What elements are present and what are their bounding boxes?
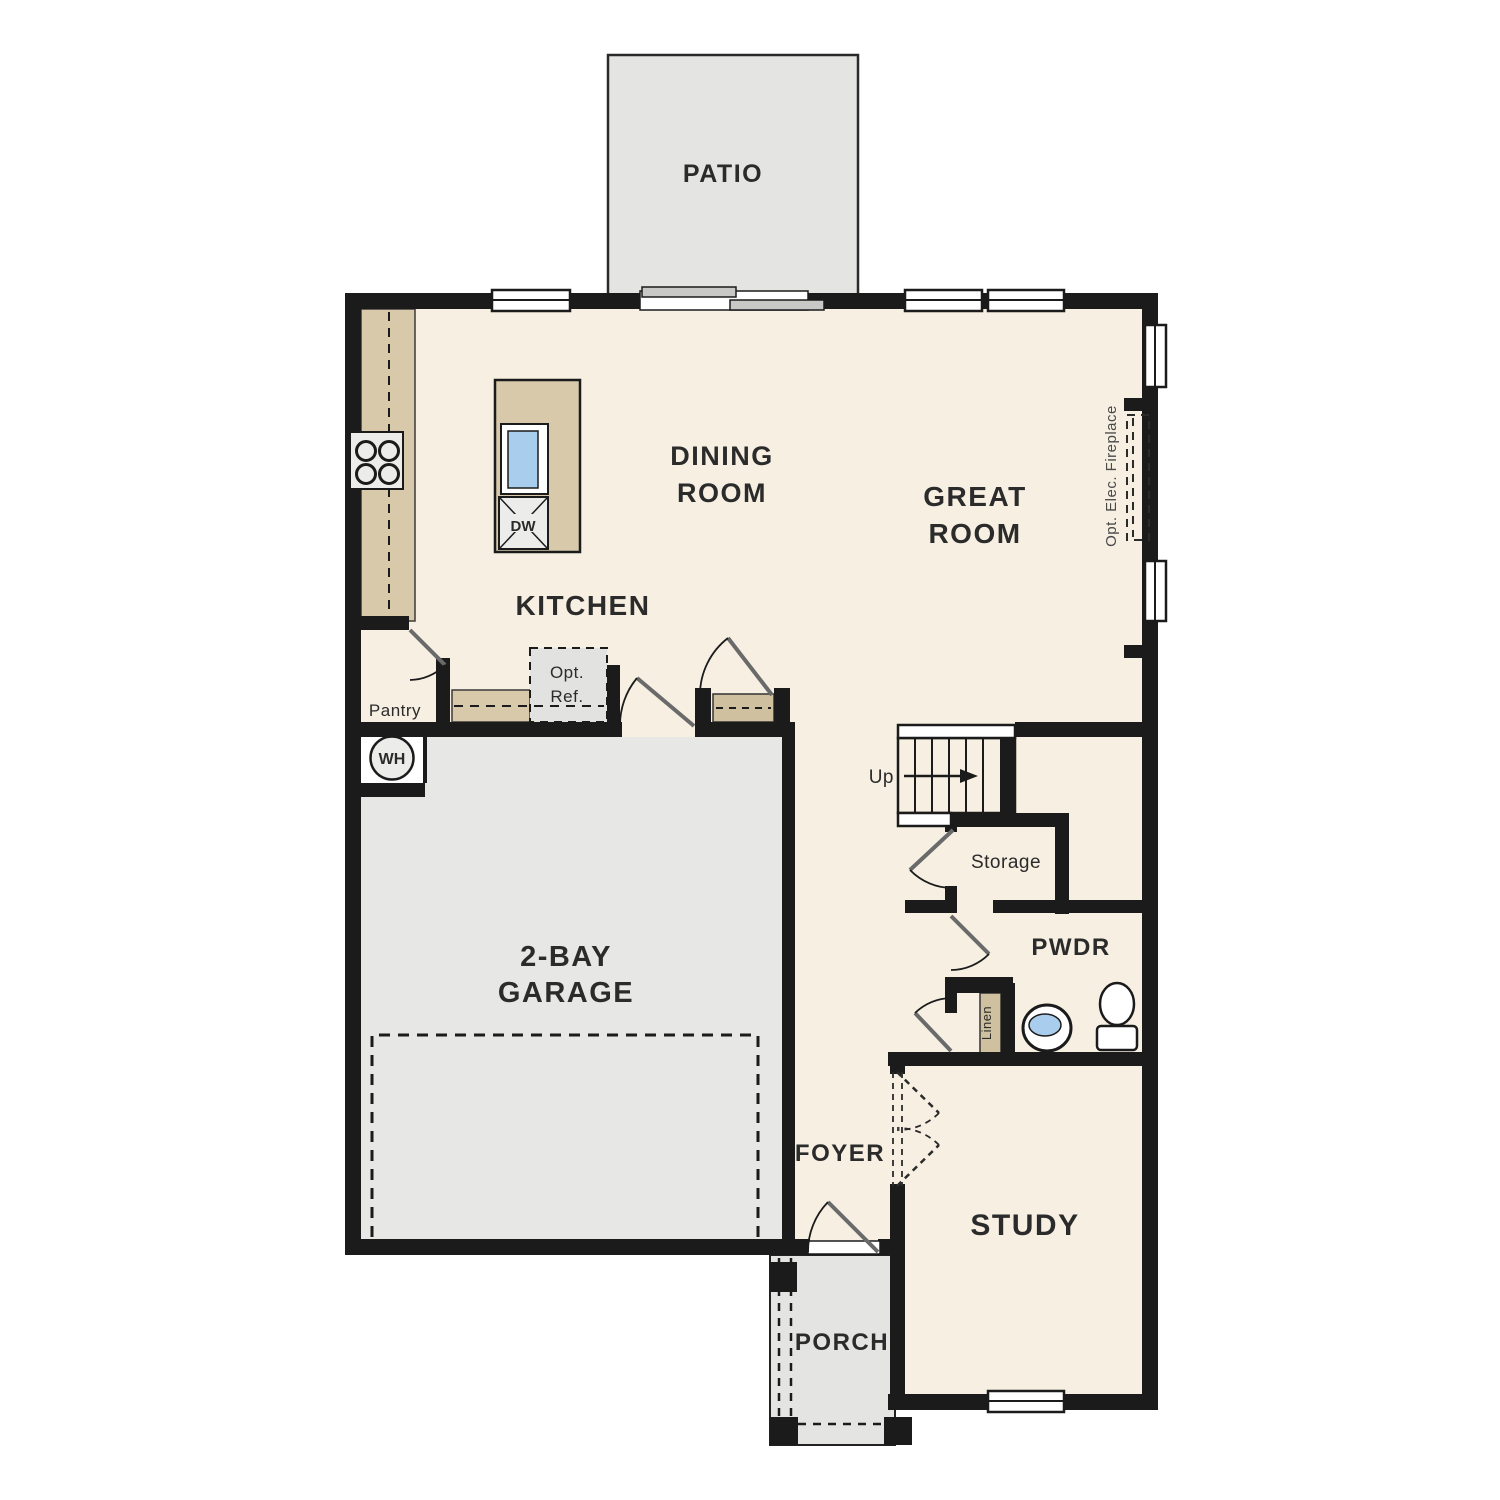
water-heater-label: WH [379,751,406,768]
dining-room-label-line1: DINING [670,441,774,471]
pantry-label: Pantry [369,701,421,720]
wh-nook-bottom-wall [345,783,425,797]
island-sink-basin [508,431,538,488]
patio-label: PATIO [683,160,763,188]
dishwasher-label: DW [511,518,537,535]
garage-label-line2: GARAGE [498,977,634,1009]
kitchen-label: KITCHEN [516,590,651,621]
foyer-label: FOYER [795,1140,885,1167]
storage-right-wall [1055,813,1069,914]
linen-label: Linen [979,1006,994,1040]
opt-ref-label-line1: Opt. [550,663,584,682]
floor-plan-canvas: PATIO DINING ROOM GREAT ROOM KITCHEN Pan… [0,0,1500,1500]
study-label: STUDY [970,1209,1079,1242]
opt-refrigerator [530,648,607,722]
fireplace-stub-top [1124,398,1158,411]
porch-label: PORCH [795,1329,889,1356]
study-top-wall [888,1052,1158,1066]
pwdr-top-wall-left [905,900,951,913]
sliding-door-panel-left [642,287,736,297]
garage-label-line1: 2-BAY [520,941,612,973]
porch-post-bottom-right [884,1417,912,1445]
opt-ref-label-line2: Ref. [550,687,583,706]
study-left-wall [890,1184,905,1394]
coat-closet-jamb-left [695,688,711,724]
storage-jamb-bottom [945,886,957,913]
dining-room-label-line2: ROOM [677,478,767,508]
great-room-south-wall [1015,722,1158,737]
great-room-label-line2: ROOM [928,518,1021,549]
garage-right-wall [782,722,795,1255]
linen-left-stub [945,993,957,1013]
pwdr-sink-basin [1029,1014,1061,1036]
stairs-up-label: Up [869,767,894,788]
pantry-top-wall [345,616,409,630]
garage-bottom-wall [345,1239,795,1255]
toilet-tank [1097,1026,1137,1050]
linen-right-wall [1001,983,1015,1057]
exterior-wall-right [1142,293,1158,1410]
pwdr-label: PWDR [1031,934,1110,961]
toilet-bowl [1100,983,1134,1025]
sliding-door-panel-right [730,300,824,310]
wh-nook-right-line [423,737,427,783]
fireplace-stub-bottom [1124,645,1158,658]
floor-plan-drawing: PATIO DINING ROOM GREAT ROOM KITCHEN Pan… [0,0,1500,1500]
kitchen-south-wall-a [345,722,622,737]
great-room-label-line1: GREAT [923,481,1026,512]
opt-elec-fireplace-label: Opt. Elec. Fireplace [1103,405,1120,547]
storage-label: Storage [971,852,1041,873]
porch-post-bottom-left [770,1417,798,1445]
porch-post-top-left [770,1262,797,1292]
kitchen-south-wall-b [695,722,795,737]
coat-closet-jamb-right [774,688,790,724]
staircase [898,725,1015,826]
stair-landing-bottom [898,813,951,826]
stair-landing-top [898,725,1015,738]
pwdr-top-wall-right [993,900,1158,913]
storage-top-wall [950,813,1069,827]
foyer-bottom-wall-left [782,1239,810,1255]
stair-wall-chunk [1000,738,1015,813]
